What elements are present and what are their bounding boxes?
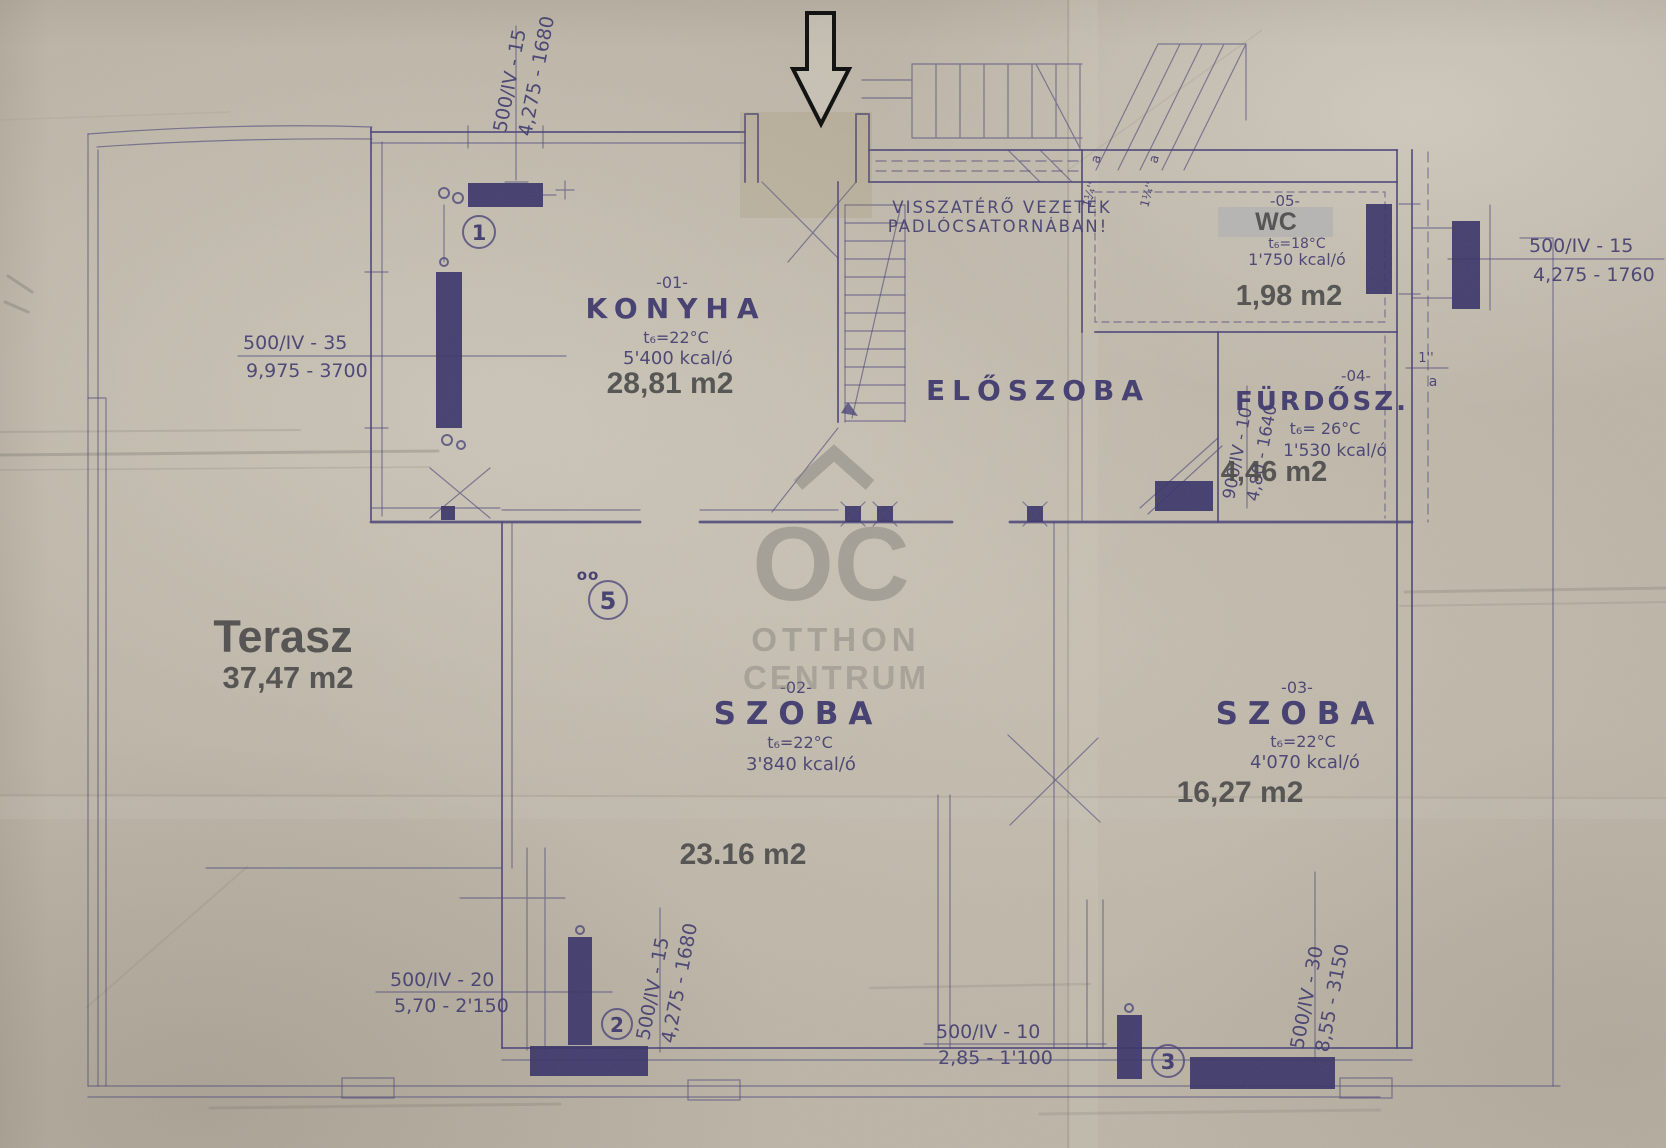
scanned-floorplan-paper: VISSZATÉRŐ VEZETÉK PADLÓCSATORNÁBAN! -01… (0, 0, 1666, 1148)
floorplan-drawing: VISSZATÉRŐ VEZETÉK PADLÓCSATORNÁBAN! -01… (0, 0, 1666, 1148)
paper-grain (0, 0, 1666, 1148)
